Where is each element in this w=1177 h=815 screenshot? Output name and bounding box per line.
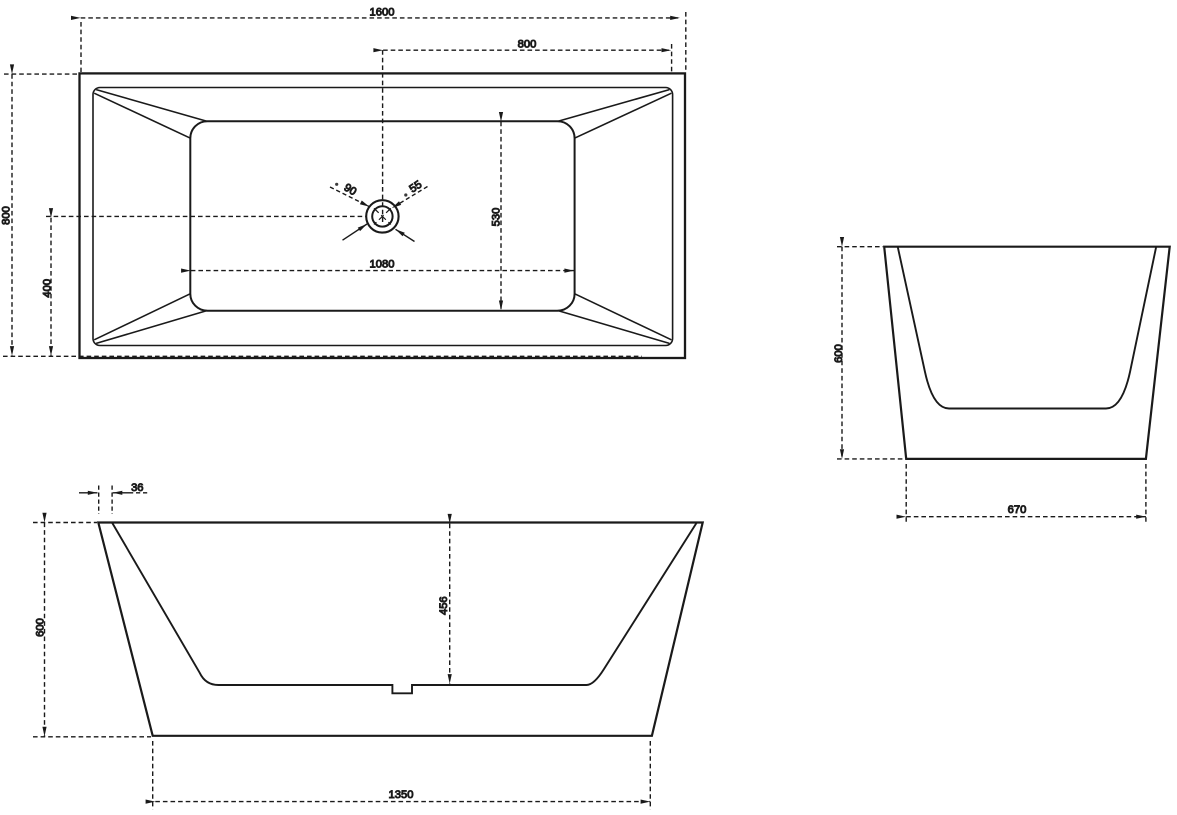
- svg-text:400: 400: [41, 279, 53, 298]
- svg-text:1350: 1350: [389, 789, 414, 801]
- svg-text:1600: 1600: [370, 7, 395, 19]
- svg-text:600: 600: [833, 344, 845, 363]
- svg-text:530: 530: [490, 208, 502, 227]
- svg-text:800: 800: [1, 206, 13, 225]
- svg-text:670: 670: [1008, 504, 1027, 516]
- svg-text:55: 55: [407, 179, 424, 196]
- svg-text:36: 36: [131, 482, 143, 494]
- svg-text:800: 800: [518, 39, 537, 51]
- svg-text:456: 456: [438, 596, 450, 615]
- svg-text:1080: 1080: [370, 258, 395, 270]
- svg-text:600: 600: [34, 618, 46, 637]
- svg-text:90: 90: [342, 182, 359, 199]
